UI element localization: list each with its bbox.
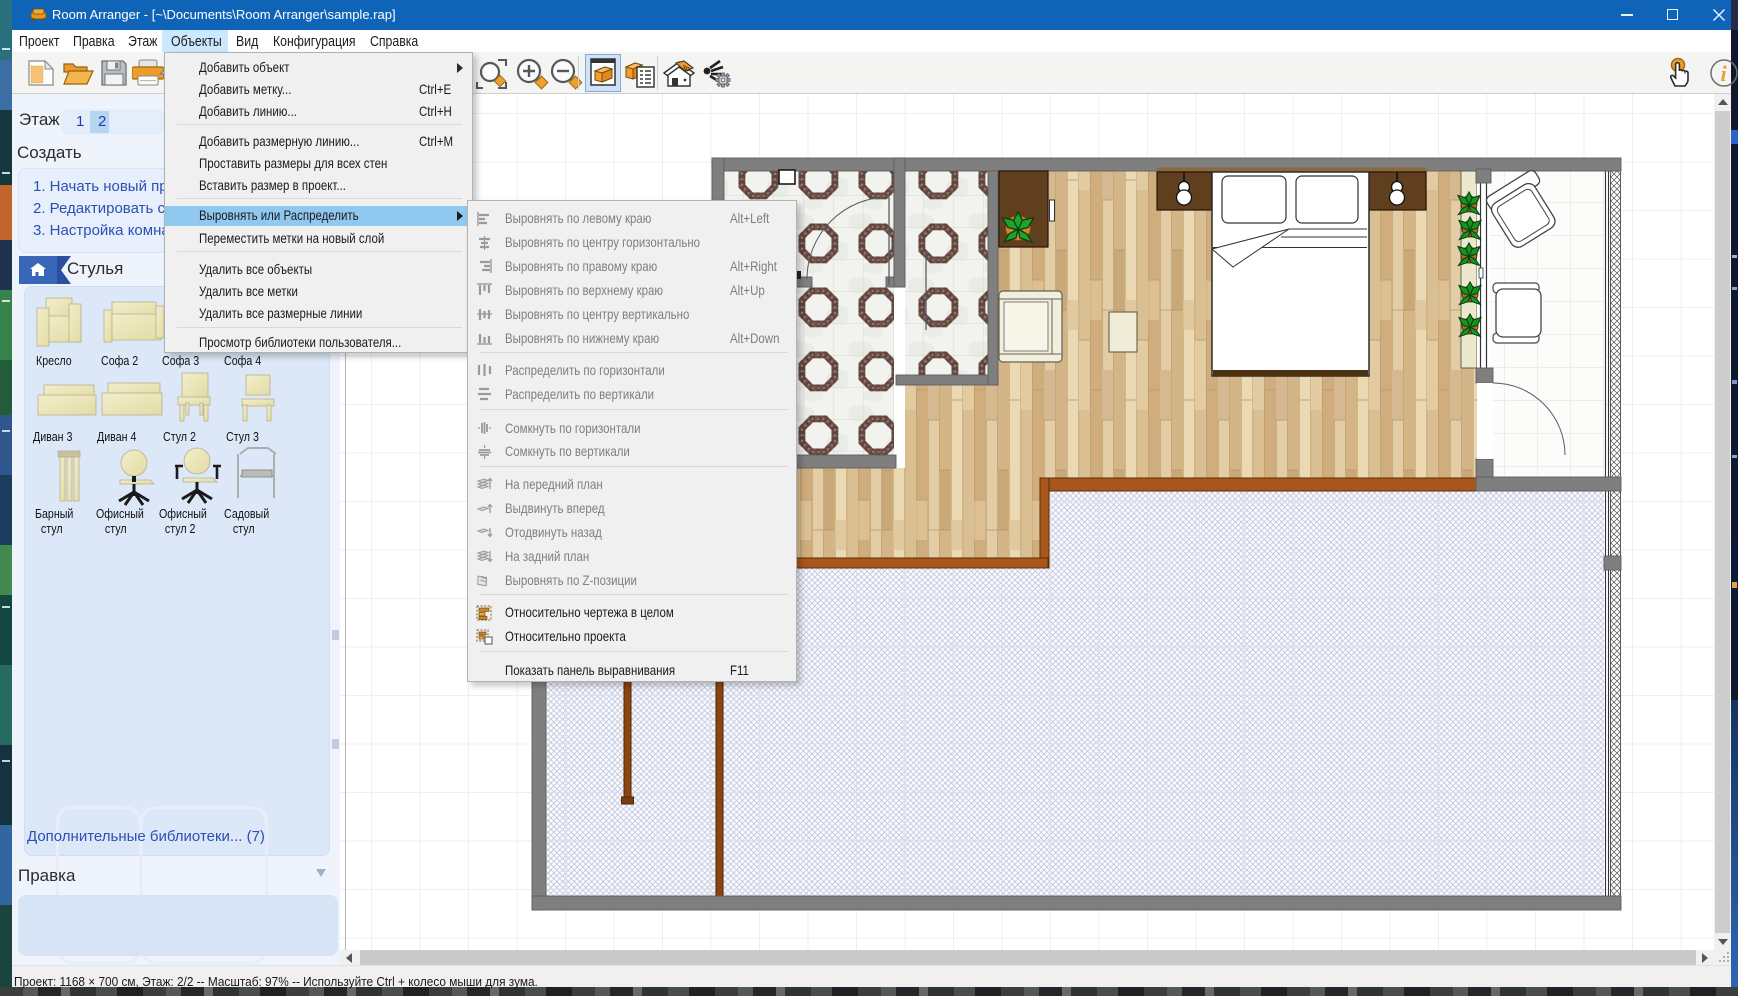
svg-text:i: i xyxy=(1721,61,1728,86)
